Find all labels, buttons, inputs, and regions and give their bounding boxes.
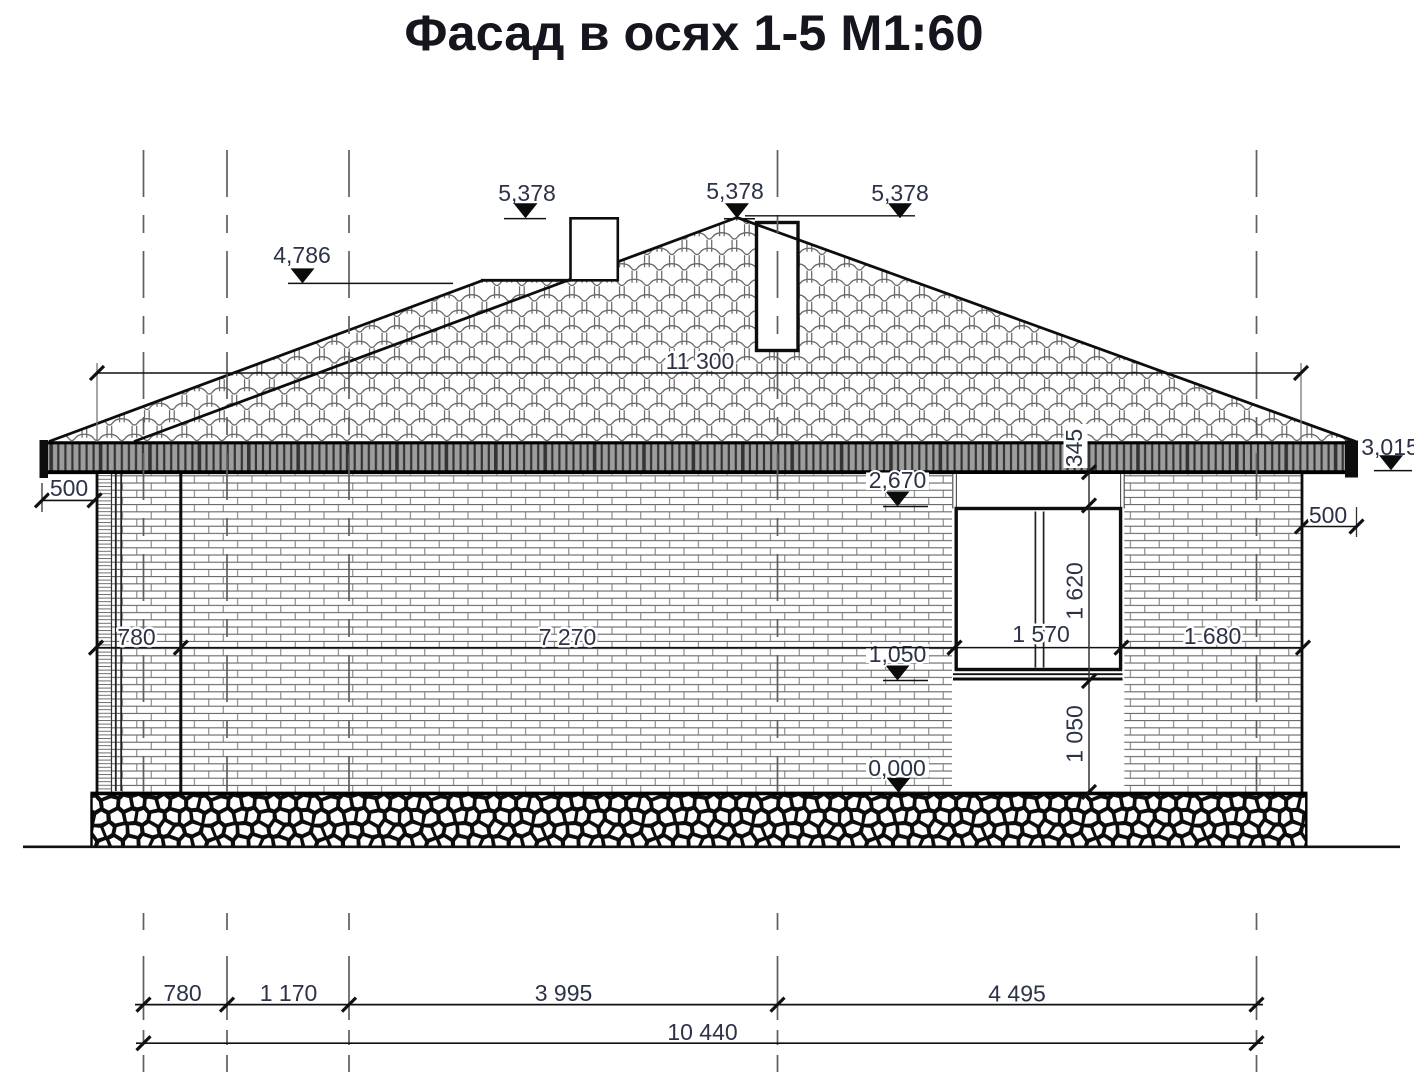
svg-text:780: 780 <box>117 624 155 650</box>
svg-text:4,786: 4,786 <box>273 242 331 268</box>
svg-text:1 620: 1 620 <box>1062 562 1088 620</box>
svg-text:1 570: 1 570 <box>1012 621 1070 647</box>
svg-text:500: 500 <box>50 475 88 501</box>
svg-text:11 300: 11 300 <box>666 348 735 374</box>
svg-text:2,670: 2,670 <box>869 467 927 493</box>
svg-text:3,015: 3,015 <box>1361 434 1414 460</box>
svg-text:5,378: 5,378 <box>871 180 929 206</box>
svg-text:1,050: 1,050 <box>869 641 927 667</box>
svg-text:345: 345 <box>1061 429 1087 467</box>
svg-text:5,378: 5,378 <box>706 178 764 204</box>
svg-text:500: 500 <box>1309 502 1347 528</box>
svg-text:7 270: 7 270 <box>539 624 597 650</box>
svg-text:1 680: 1 680 <box>1184 623 1242 649</box>
svg-text:1 050: 1 050 <box>1062 705 1088 763</box>
svg-text:4 495: 4 495 <box>988 981 1046 1007</box>
svg-text:Фасад в осях 1-5 М1:60: Фасад в осях 1-5 М1:60 <box>404 4 983 61</box>
svg-text:780: 780 <box>163 980 201 1006</box>
svg-text:1 170: 1 170 <box>260 980 318 1006</box>
svg-text:10 440: 10 440 <box>667 1019 737 1045</box>
svg-text:3 995: 3 995 <box>535 980 593 1006</box>
svg-text:0,000: 0,000 <box>868 755 926 781</box>
svg-text:5,378: 5,378 <box>498 180 556 206</box>
